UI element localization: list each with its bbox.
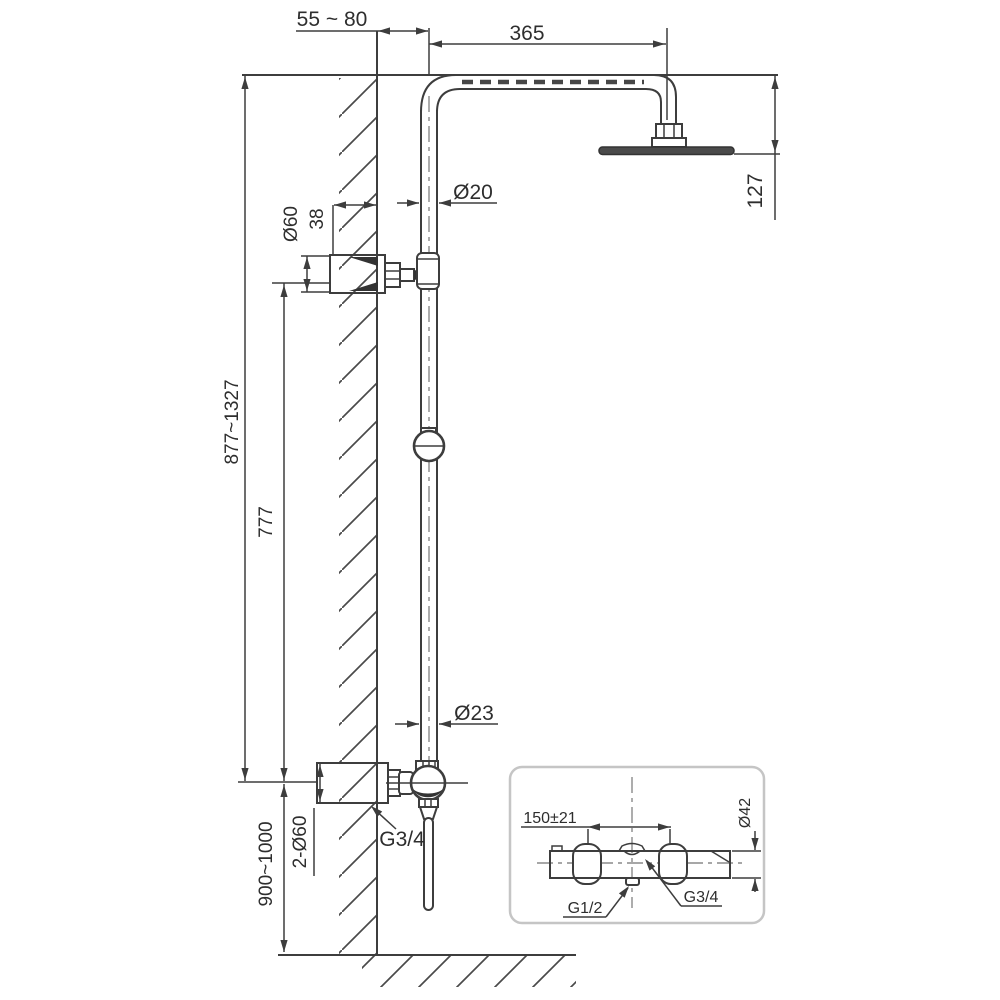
dim-bracket-dia-label: Ø60	[281, 206, 302, 242]
shower-technical-drawing: 55 ~ 80 365 127 Ø20 Ø60 38	[0, 0, 1000, 1000]
label-bottom-outlet-thread-text: G1/2	[568, 900, 603, 917]
bottom-outlet	[626, 878, 639, 885]
dim-body-dia-label: Ø42	[737, 798, 754, 828]
dim-riser-range: 877~1327	[222, 75, 249, 781]
dim-head-drop: 127	[734, 75, 780, 220]
dim-bracket-depth-label: 38	[307, 208, 328, 229]
wall-hatching	[339, 78, 377, 955]
shower-head	[599, 124, 734, 155]
upper-bracket-arm	[400, 269, 414, 281]
dim-bracket-spacing-label: 777	[256, 506, 277, 538]
shower-technical-drawing-page: 55 ~ 80 365 127 Ø20 Ø60 38	[0, 0, 1000, 1000]
head-disc	[599, 147, 734, 155]
dim-riser-range-label: 877~1327	[222, 379, 243, 464]
floor-section	[278, 955, 576, 987]
dim-mount-height-label: 900~1000	[256, 821, 277, 906]
dim-head-drop-label: 127	[744, 173, 767, 208]
dim-wall-offset: 55 ~ 80	[296, 8, 428, 35]
wall-section	[339, 31, 377, 955]
inset-detail: 150±21 Ø42 G1/2 G3/4	[510, 767, 764, 923]
dim-escutcheons-label: 2-Ø60	[290, 816, 311, 869]
head-flange	[652, 138, 686, 147]
dim-pipe-lower-dia: Ø23	[395, 702, 498, 728]
dim-arm-length: 365	[429, 22, 667, 120]
head-nut	[656, 124, 682, 138]
inset-border	[510, 767, 764, 923]
shower-arm	[242, 75, 778, 124]
dim-pipe-upper-dia-label: Ø20	[453, 181, 493, 204]
dim-bracket-spacing: 777	[256, 283, 331, 781]
dim-valve-spacing-label: 150±21	[523, 810, 576, 827]
slider-knob	[413, 428, 445, 461]
dim-wall-offset-label: 55 ~ 80	[297, 8, 368, 31]
dim-arm-length-label: 365	[509, 22, 544, 45]
upper-bracket-nut	[385, 263, 400, 287]
dim-escutcheons: 2-Ø60	[290, 764, 324, 876]
lower-collar-bottom	[419, 799, 438, 807]
hand-shower-wand	[424, 818, 433, 910]
dim-pipe-lower-dia-label: Ø23	[454, 702, 494, 725]
label-top-outlet-thread-text: G3/4	[684, 889, 719, 906]
dim-pipe-upper-dia: Ø20	[397, 181, 497, 207]
label-lower-thread-text: G3/4	[379, 828, 425, 851]
floor-hatching	[362, 956, 576, 987]
